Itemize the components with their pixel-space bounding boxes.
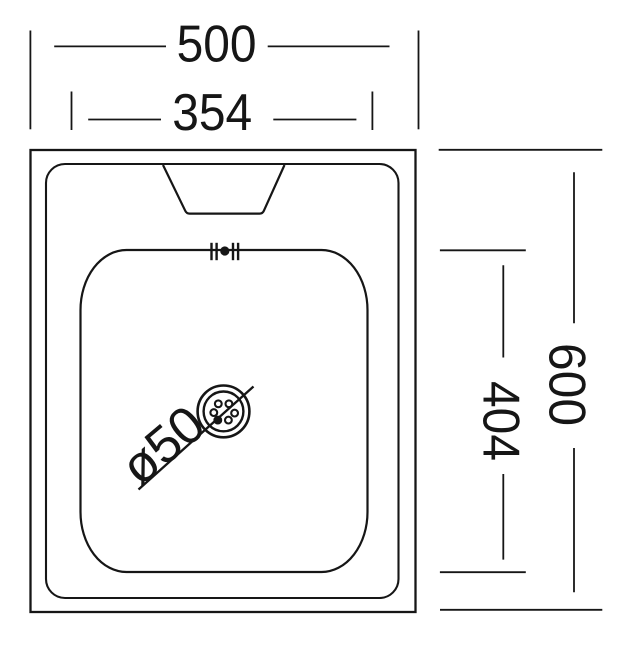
svg-text:354: 354 <box>172 84 252 142</box>
svg-text:600: 600 <box>538 343 596 426</box>
svg-text:500: 500 <box>177 16 257 74</box>
svg-text:404: 404 <box>472 381 530 461</box>
